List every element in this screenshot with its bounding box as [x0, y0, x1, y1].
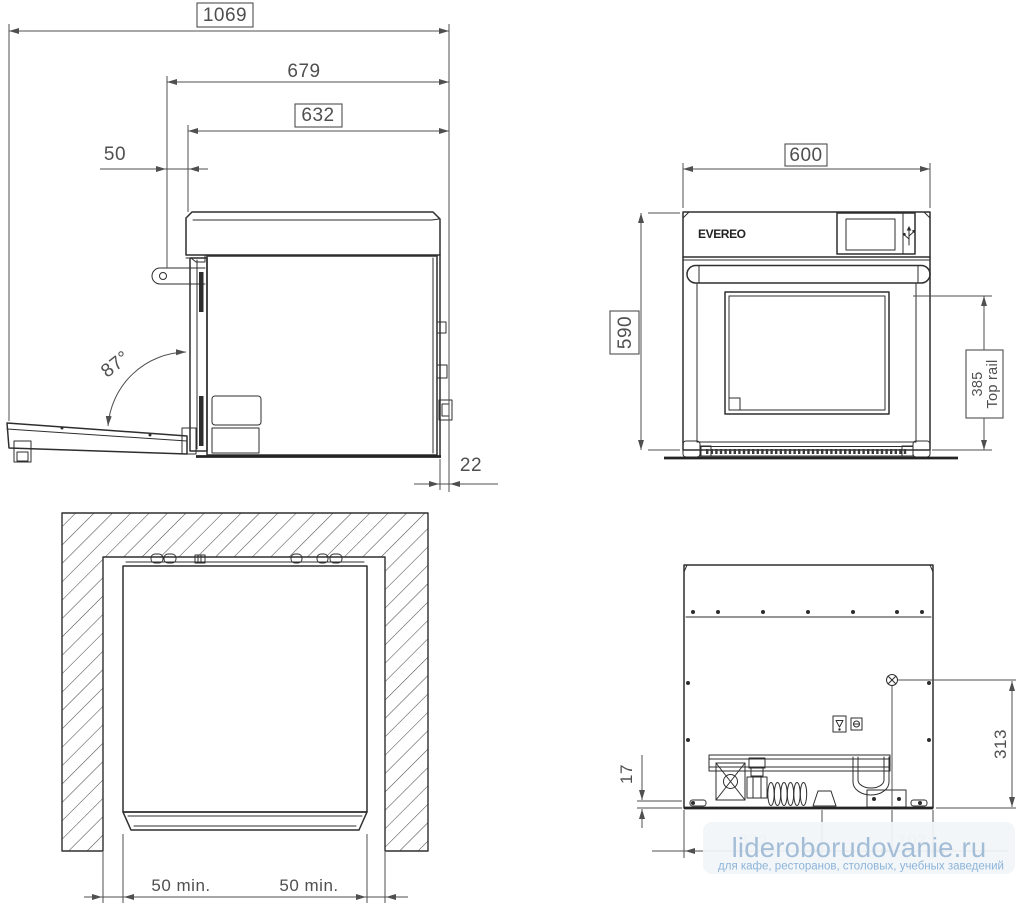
side-rear-tab-upper	[437, 322, 446, 333]
top-view-installation: 50 min. 50 min.	[62, 513, 428, 903]
usb-port-icon	[903, 226, 915, 245]
rear-screws	[686, 610, 931, 805]
width-label: 600	[789, 145, 822, 166]
top-oven-body	[123, 554, 367, 812]
dim-width: 600	[683, 144, 930, 208]
dim-overall-depth: 1069	[9, 3, 449, 492]
control-screen[interactable]	[837, 213, 915, 254]
right-clearance-label: 50 min.	[279, 876, 338, 895]
side-front-frame	[190, 258, 207, 451]
door-angle-label: 87°	[97, 347, 134, 382]
side-module-upper	[212, 396, 261, 425]
dim-height: 590	[610, 213, 680, 450]
rear-view	[684, 565, 933, 808]
dim-side-clearances: 50 min. 50 min.	[84, 834, 408, 903]
rear-electrical-symbols	[833, 716, 862, 732]
dim-top-rail: 385 Top rail	[913, 296, 1003, 450]
site-watermark: lideroborudovanie.ru для кафе, ресторано…	[703, 822, 1015, 874]
front-left-foot	[683, 441, 700, 457]
dim-base-height: 17	[617, 755, 682, 828]
left-clearance-label: 50 min.	[151, 876, 210, 895]
side-door-gasket-upper	[199, 272, 204, 312]
oven-door[interactable]	[697, 284, 916, 442]
rear-panel	[684, 565, 933, 808]
front-offset-label: 50	[104, 144, 126, 165]
door-window	[725, 292, 889, 414]
rear-pump	[716, 763, 745, 800]
door-handle[interactable]	[687, 266, 930, 284]
front-bottom-vent	[683, 441, 930, 457]
watermark-title: lideroborudovanie.ru	[732, 832, 987, 863]
dim-connection-height: 313	[898, 680, 1016, 808]
height-label: 590	[615, 316, 636, 349]
rear-u-duct	[853, 757, 889, 795]
side-top-panel	[186, 212, 440, 255]
front-view: EVEREO	[664, 212, 958, 458]
top-rail-value-label: 385	[970, 371, 986, 396]
rear-drain-bump	[813, 791, 836, 806]
side-module-lower	[212, 428, 259, 453]
base-height-label: 17	[617, 764, 636, 784]
door-face-depth-label: 679	[287, 61, 320, 82]
side-view-door-open: 87°	[7, 212, 452, 462]
watermark-subtitle: для кафе, ресторанов, столовых, учебных …	[718, 861, 1004, 873]
technical-drawing-page: 87° 1069 679 632 50	[0, 0, 1024, 909]
rear-water-connection	[887, 675, 898, 686]
side-rear-bracket	[439, 400, 452, 420]
front-right-foot	[913, 441, 930, 457]
dim-front-offset: 50	[100, 144, 208, 169]
rear-corrugated-hose	[768, 783, 807, 806]
side-view-dimensions: 1069 679 632 50 22	[9, 3, 498, 492]
top-oven-door	[123, 812, 367, 830]
dim-rear-gap: 22	[414, 455, 498, 490]
niche-walls-hatched	[62, 513, 428, 851]
rear-fittings	[747, 758, 767, 798]
front-view-dimensions: 600 590 385 Top rail	[610, 144, 1003, 450]
dim-body-depth: 632	[188, 104, 449, 212]
connection-height-label: 313	[991, 729, 1010, 759]
oven-installation-drawing: 87° 1069 679 632 50	[0, 0, 1024, 909]
rear-service-assembly	[709, 755, 906, 807]
display-screen[interactable]	[846, 219, 895, 250]
overall-depth-label: 1069	[203, 5, 247, 26]
dim-depth-to-door-face: 679	[167, 61, 449, 268]
side-door-gasket-lower	[199, 396, 204, 446]
rear-gap-label: 22	[460, 455, 482, 476]
top-rail-caption-label: Top rail	[985, 359, 1001, 408]
door-window-badge	[729, 398, 740, 410]
body-depth-label: 632	[301, 105, 334, 126]
side-rear-tab-lower	[437, 365, 447, 378]
dim-door-open-angle: 87°	[97, 347, 186, 426]
side-open-door	[7, 423, 196, 462]
brand-logo: EVEREO	[698, 227, 746, 241]
